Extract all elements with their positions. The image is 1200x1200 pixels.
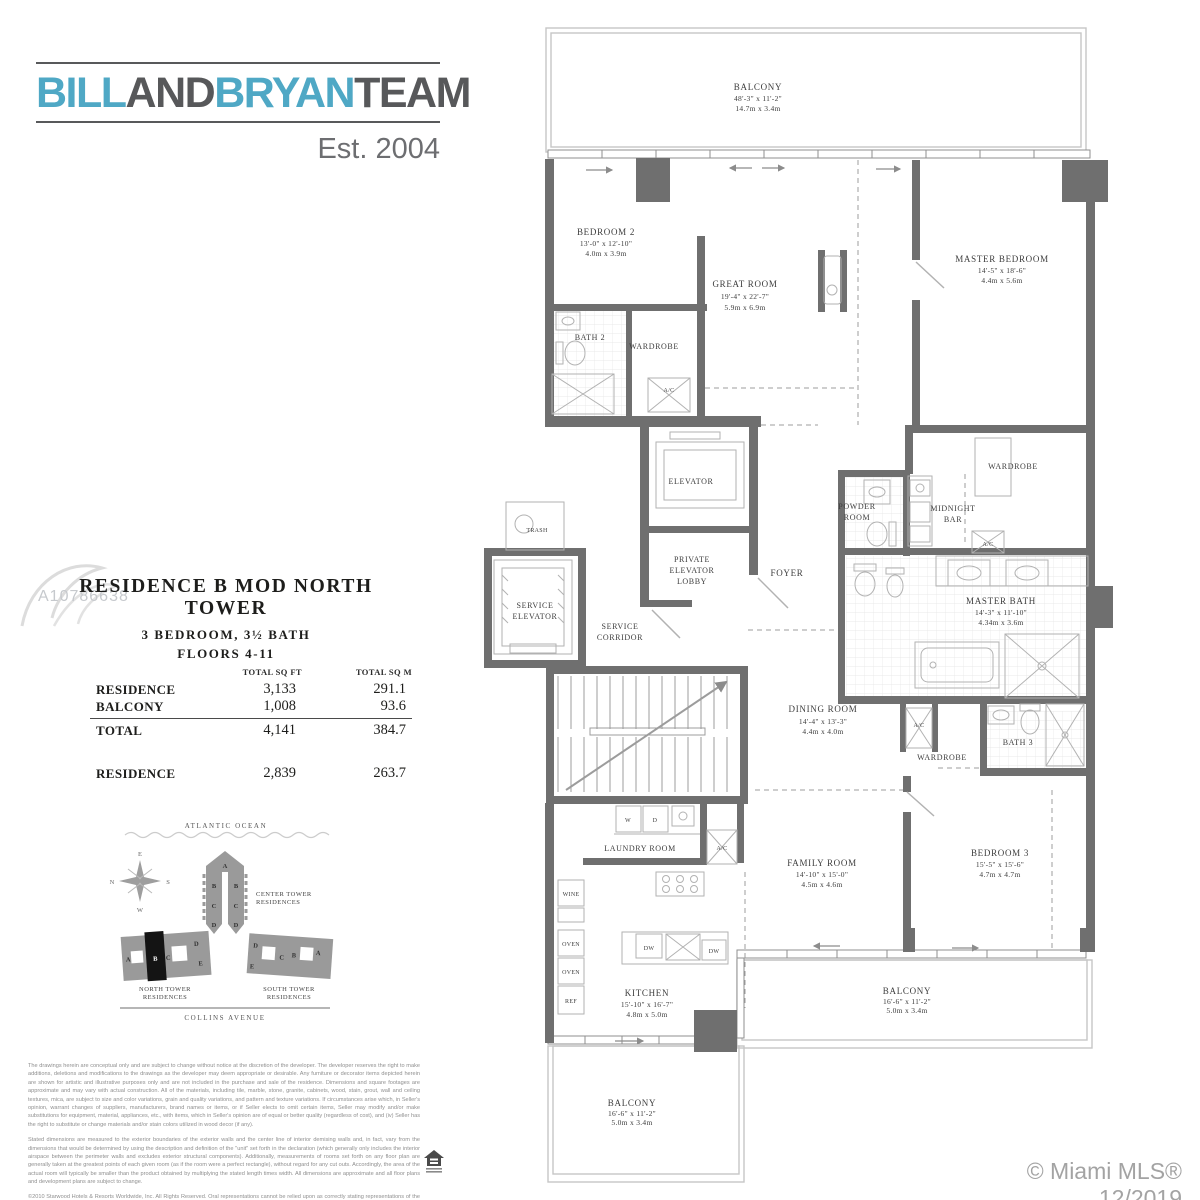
compass-n: N [110, 879, 115, 886]
north-unit-d: D [194, 941, 199, 948]
ocean-wave-line [125, 833, 329, 838]
table-row-residence: RESIDENCE 3,133 291.1 [40, 681, 412, 698]
table-row-total: TOTAL 4,141 384.7 [40, 722, 412, 739]
south-tower-label-1: SOUTH TOWER [263, 986, 315, 993]
residence-title: RESIDENCE B MOD NORTH TOWER [40, 576, 412, 620]
south-unit-a: A [316, 950, 321, 957]
label-balcony-bottom-m: 5.0m x 3.4m [611, 1118, 652, 1127]
label-family-room-ft: 14'-10" x 15'-0" [796, 870, 848, 879]
label-midnight-bar-1: MIDNIGHT [930, 504, 975, 513]
logo-word-team: TEAM [354, 69, 470, 117]
label-bedroom3: BEDROOM 3 [971, 848, 1029, 858]
residence-info: RESIDENCE B MOD NORTH TOWER 3 BEDROOM, 3… [40, 576, 412, 662]
label-powder-room-2: ROOM [844, 513, 870, 522]
label-bedroom2-m: 4.0m x 3.9m [585, 249, 626, 258]
north-unit-c: C [166, 955, 171, 962]
label-midnight-bar-2: BAR [944, 515, 962, 524]
label-oven-1: OVEN [562, 942, 580, 948]
label-dining-room: DINING ROOM [789, 704, 858, 714]
label-ac-4: A/C [717, 846, 728, 852]
atlantic-ocean-label: ATLANTIC OCEAN [185, 822, 267, 830]
label-great-room: GREAT ROOM [712, 279, 777, 289]
label-master-bedroom-m: 4.4m x 5.6m [981, 276, 1022, 285]
center-tower-label-1: CENTER TOWER [256, 891, 312, 898]
label-bath3: BATH 3 [1003, 738, 1034, 747]
label-wardrobe-master: WARDROBE [988, 462, 1038, 471]
floorplan-page: BILLANDBRYANTEAM Est. 2004 A10786638 © M… [0, 0, 1200, 1200]
center-unit-c1: C [212, 903, 217, 910]
label-family-room: FAMILY ROOM [787, 858, 857, 868]
label-kitchen-m: 4.8m x 5.0m [626, 1010, 667, 1019]
label-service-corridor-2: CORRIDOR [597, 633, 643, 642]
stairs [558, 676, 727, 792]
label-dining-room-m: 4.4m x 4.0m [802, 727, 843, 736]
legal-paragraph-2: Stated dimensions are measured to the ex… [28, 1136, 420, 1186]
label-family-room-m: 4.5m x 4.6m [801, 880, 842, 889]
center-unit-b1: B [212, 883, 217, 890]
logo-wordmark: BILLANDBRYANTEAM [36, 64, 440, 121]
label-private-lobby-3: LOBBY [677, 577, 707, 586]
header-total-sqm: TOTAL SQ M [320, 664, 412, 681]
label-wardrobe3: WARDROBE [917, 753, 967, 762]
label-master-bath: MASTER BATH [966, 596, 1036, 606]
center-unit-d2: D [234, 922, 239, 929]
label-dryer: D [653, 818, 658, 824]
label-service-elevator-2: ELEVATOR [513, 612, 558, 621]
label-powder-room-1: POWDER [838, 502, 875, 511]
label-bedroom2-ft: 13'-0" x 12'-10" [580, 239, 632, 248]
label-dining-room-ft: 14'-4" x 13'-3" [799, 717, 847, 726]
label-balcony-top-ft: 48'-3" x 11'-2" [734, 94, 782, 103]
label-dw-2: DW [709, 949, 720, 955]
table-divider [90, 718, 412, 719]
compass-e: E [138, 851, 142, 858]
compass-w: W [137, 907, 144, 914]
label-balcony-bottom: BALCONY [608, 1098, 656, 1108]
label-ac-2: A/C [983, 542, 994, 548]
label-washer: W [625, 818, 631, 824]
south-tower-label-2: RESIDENCES [267, 994, 311, 1001]
legal-paragraph-1: The drawings herein are conceptual only … [28, 1062, 420, 1129]
label-bedroom3-ft: 15'-5" x 15'-6" [976, 860, 1024, 869]
compass-s: S [166, 879, 170, 886]
north-tower-label-1: NORTH TOWER [139, 986, 191, 993]
north-unit-e: E [198, 960, 203, 967]
label-balcony-right-m: 5.0m x 3.4m [886, 1006, 927, 1015]
label-bath2: BATH 2 [575, 333, 606, 342]
brand-logo: BILLANDBRYANTEAM Est. 2004 [36, 62, 440, 166]
legal-paragraph-3: ©2010 Starwood Hotels & Resorts Worldwid… [28, 1193, 420, 1200]
label-master-bedroom: MASTER BEDROOM [955, 254, 1049, 264]
label-trash: TRASH [526, 528, 548, 534]
square-footage-table: TOTAL SQ FT TOTAL SQ M RESIDENCE 3,133 2… [40, 664, 412, 782]
label-balcony-top-m: 14.7m x 3.4m [735, 104, 780, 113]
label-wardrobe2: WARDROBE [629, 342, 679, 351]
table-row-residence-mod: RESIDENCE 2,839 263.7 [40, 765, 412, 782]
south-unit-d: D [253, 943, 258, 950]
label-bedroom3-m: 4.7m x 4.7m [979, 870, 1020, 879]
label-ref: REF [565, 999, 577, 1005]
label-ac-1: A/C [664, 388, 675, 394]
table-row-balcony: BALCONY 1,008 93.6 [40, 698, 412, 715]
logo-bottom-rule [36, 121, 440, 123]
center-unit-c2: C [234, 903, 239, 910]
label-master-bath-ft: 14'-3" x 11'-10" [975, 608, 1027, 617]
label-laundry-room: LAUNDRY ROOM [604, 844, 676, 853]
label-wine: WINE [563, 892, 580, 898]
label-service-corridor-1: SERVICE [602, 622, 639, 631]
label-private-lobby-2: ELEVATOR [670, 566, 715, 575]
logo-word-bryan: BRYAN [214, 69, 354, 117]
header-total-sqft: TOTAL SQ FT [210, 664, 320, 681]
label-elevator: ELEVATOR [669, 477, 714, 486]
logo-established: Est. 2004 [36, 133, 440, 166]
label-service-elevator-1: SERVICE [517, 601, 554, 610]
center-tower-label-2: RESIDENCES [256, 899, 300, 906]
center-unit-d1: D [212, 922, 217, 929]
label-master-bedroom-ft: 14'-5" x 18'-6" [978, 266, 1026, 275]
south-unit-c: C [279, 954, 284, 961]
equal-housing-icon [424, 1150, 444, 1176]
legal-disclaimer: The drawings herein are conceptual only … [28, 1062, 420, 1200]
compass-rose-icon: E S W N [110, 851, 171, 914]
label-kitchen: KITCHEN [625, 988, 669, 998]
table-header-row: TOTAL SQ FT TOTAL SQ M [40, 664, 412, 681]
logo-word-bill: BILL [36, 69, 126, 117]
residence-subtitle: 3 BEDROOM, 3½ BATH [40, 627, 412, 643]
center-unit-b2: B [234, 883, 239, 890]
label-oven-2: OVEN [562, 970, 580, 976]
center-unit-a: A [223, 863, 228, 870]
label-great-room-ft: 19'-4" x 22'-7" [721, 292, 769, 301]
center-tower: A B B C C D D CENTER TOWER RESIDENCES [204, 851, 312, 934]
label-foyer: FOYER [770, 568, 803, 578]
label-master-bath-m: 4.34m x 3.6m [978, 618, 1023, 627]
logo-word-and: AND [126, 69, 215, 117]
south-tower: D C B A E [247, 933, 334, 979]
south-unit-e: E [250, 963, 255, 970]
residence-floors: FLOORS 4-11 [40, 646, 412, 662]
label-dw-1: DW [644, 946, 655, 952]
room-labels: BALCONY 48'-3" x 11'-2" 14.7m x 3.4m BED… [513, 82, 1049, 1127]
label-balcony-bottom-ft: 16'-6" x 11'-2" [608, 1109, 656, 1118]
label-balcony-right-ft: 16'-6" x 11'-2" [883, 997, 931, 1006]
label-balcony-right: BALCONY [883, 986, 931, 996]
label-kitchen-ft: 15'-10" x 16'-7" [621, 1000, 673, 1009]
label-bedroom2: BEDROOM 2 [577, 227, 635, 237]
floorplan-drawing: BALCONY 48'-3" x 11'-2" 14.7m x 3.4m BED… [470, 15, 1200, 1195]
label-balcony-top: BALCONY [734, 82, 782, 92]
collins-avenue-label: COLLINS AVENUE [184, 1014, 265, 1022]
label-ac-3: A/C [914, 723, 925, 729]
label-great-room-m: 5.9m x 6.9m [724, 303, 765, 312]
label-private-lobby-1: PRIVATE [674, 555, 710, 564]
north-tower: A B C D E [120, 928, 211, 983]
site-map: ATLANTIC OCEAN E S W N A B B C C D D CEN… [55, 812, 395, 1040]
north-unit-a: A [126, 956, 131, 963]
north-tower-label-2: RESIDENCES [143, 994, 187, 1001]
